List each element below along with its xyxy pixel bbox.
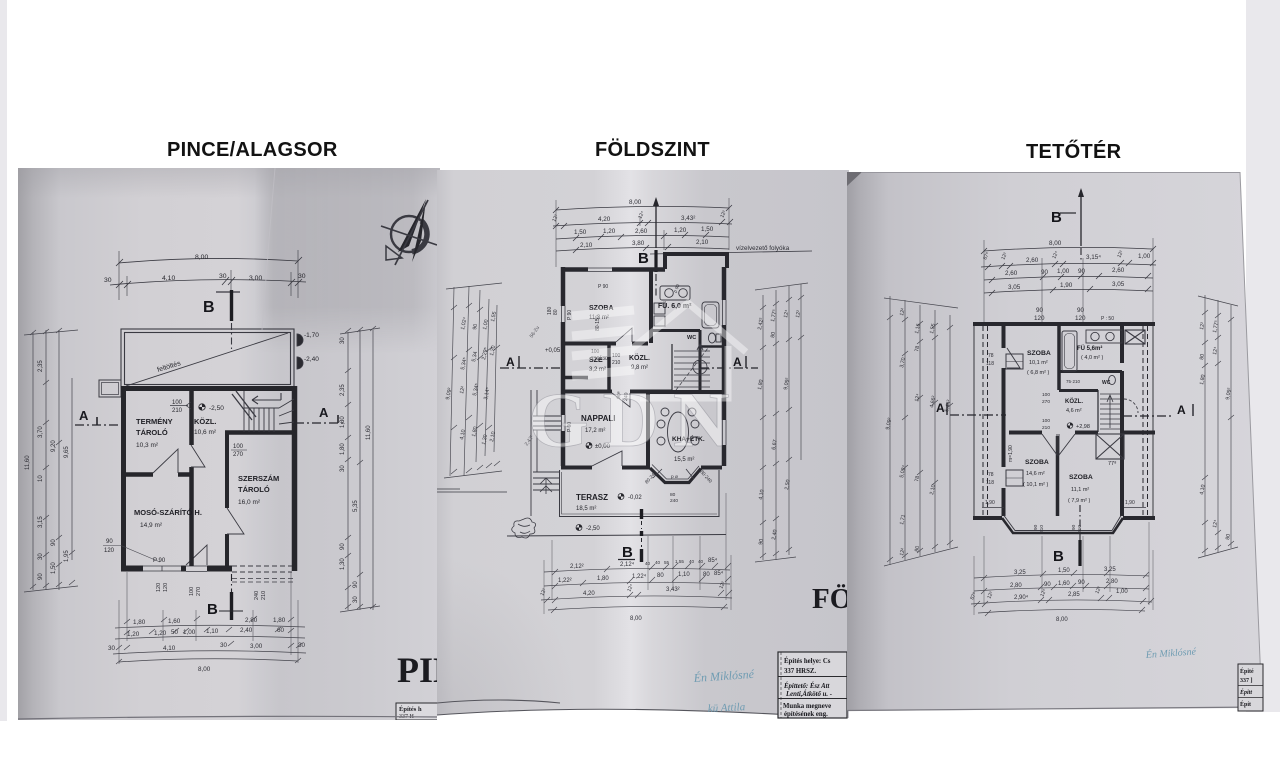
svg-text:11,60: 11,60 [366, 425, 372, 440]
svg-text:80: 80 [703, 572, 710, 578]
svg-text:1,90: 1,90 [985, 500, 995, 506]
svg-text:210: 210 [612, 360, 621, 366]
svg-text:40: 40 [698, 559, 704, 564]
svg-text:60: 60 [277, 627, 285, 634]
svg-text:B: B [207, 601, 218, 618]
svg-text:2,35: 2,35 [38, 360, 44, 372]
svg-text:1,30: 1,30 [340, 558, 346, 570]
svg-text:80: 80 [770, 331, 777, 338]
svg-text:3,80: 3,80 [632, 240, 645, 247]
svg-text:KÖZL.: KÖZL. [1065, 398, 1083, 405]
svg-text:A: A [79, 408, 89, 423]
svg-text:2,90⁴: 2,90⁴ [1014, 594, 1029, 601]
svg-text:WC: WC [1102, 380, 1111, 386]
svg-text:80: 80 [1199, 353, 1206, 360]
svg-text:Építtető: Ész Att: Építtető: Ész Att [783, 682, 831, 690]
svg-text:10,1 m²: 10,1 m² [1029, 360, 1048, 366]
svg-text:270: 270 [196, 587, 202, 596]
svg-text:SZERSZÁM: SZERSZÁM [238, 474, 279, 483]
svg-text:2,80: 2,80 [1106, 579, 1118, 585]
svg-text:9,20: 9,20 [51, 440, 57, 452]
svg-text:1,90: 1,90 [1125, 500, 1135, 506]
svg-text:80: 80 [1225, 533, 1232, 540]
svg-text:118: 118 [986, 361, 994, 367]
svg-text:1,80: 1,80 [133, 619, 146, 626]
svg-text:Lenti,Átkötő u. -: Lenti,Átkötő u. - [785, 690, 833, 698]
svg-text:80: 80 [657, 573, 664, 579]
svg-text:11,1 m²: 11,1 m² [1071, 487, 1089, 493]
svg-text:30: 30 [353, 596, 359, 603]
svg-text:240: 240 [254, 591, 260, 600]
svg-text:30: 30 [340, 337, 346, 344]
svg-text:4,20: 4,20 [583, 591, 595, 597]
svg-text:2,60: 2,60 [1112, 267, 1125, 274]
svg-text:2,85: 2,85 [1068, 592, 1080, 598]
svg-text:SZOBA: SZOBA [1025, 459, 1049, 466]
svg-text:30: 30 [38, 553, 44, 560]
svg-text:1,55: 1,55 [675, 559, 684, 564]
svg-text:2,60: 2,60 [635, 228, 648, 235]
svg-text:1,80: 1,80 [597, 576, 609, 582]
svg-text:P 90: P 90 [153, 558, 166, 564]
svg-text:kü Attila: kü Attila [708, 701, 746, 715]
svg-text:m=1,90: m=1,90 [1008, 445, 1014, 462]
svg-text:90: 90 [1033, 524, 1039, 530]
svg-text:B: B [622, 544, 633, 561]
svg-text:3,00: 3,00 [250, 643, 263, 650]
svg-text:TERMÉNY: TERMÉNY [136, 417, 173, 426]
svg-text:210: 210 [261, 591, 267, 600]
svg-text:10,6 m²: 10,6 m² [194, 429, 217, 436]
svg-text:1,20: 1,20 [603, 228, 616, 235]
svg-text:90: 90 [353, 581, 359, 588]
svg-text:Épitt: Épitt [1239, 688, 1252, 696]
svg-text:építésének eng.: építésének eng. [784, 711, 828, 718]
svg-text:GDN: GDN [528, 376, 743, 463]
svg-text:A: A [1177, 403, 1186, 417]
svg-text:3,15: 3,15 [38, 516, 44, 528]
svg-text:1,60: 1,60 [168, 618, 181, 625]
svg-text:30: 30 [220, 642, 228, 649]
svg-text:A: A [733, 355, 742, 369]
svg-text:1,00: 1,00 [1116, 589, 1128, 595]
svg-text:50: 50 [171, 629, 179, 636]
svg-text:10,3 m²: 10,3 m² [136, 442, 159, 449]
svg-text:( 7,9 m² ): ( 7,9 m² ) [1068, 498, 1090, 504]
svg-text:KÖZL.: KÖZL. [194, 417, 217, 426]
svg-text:3,05: 3,05 [1008, 284, 1021, 291]
svg-text:90: 90 [1071, 524, 1077, 530]
svg-text:30: 30 [104, 277, 112, 284]
svg-text:1,80: 1,80 [340, 443, 346, 455]
svg-text:90: 90 [38, 573, 44, 580]
svg-text:MOSÓ-SZÁRÍTÓ H.: MOSÓ-SZÁRÍTÓ H. [134, 508, 202, 517]
svg-text:78: 78 [988, 353, 994, 359]
svg-text:B: B [1053, 548, 1064, 565]
svg-text:8,00: 8,00 [195, 254, 208, 261]
svg-text:-1,70: -1,70 [304, 332, 319, 339]
svg-text:55: 55 [664, 560, 670, 565]
svg-text:10: 10 [38, 475, 44, 482]
svg-text:1,00: 1,00 [183, 629, 196, 636]
svg-text:1,80: 1,80 [273, 617, 286, 624]
svg-text:1,00: 1,00 [1057, 268, 1070, 275]
svg-text:2,12⁴: 2,12⁴ [620, 561, 635, 568]
svg-text:40: 40 [645, 561, 651, 566]
svg-text:120: 120 [156, 583, 162, 592]
svg-text:8,00: 8,00 [629, 199, 642, 206]
svg-text:2,35: 2,35 [340, 384, 346, 396]
svg-text:90: 90 [1077, 307, 1085, 314]
svg-text:2,10: 2,10 [580, 242, 593, 249]
svg-text:1,22⁴: 1,22⁴ [632, 573, 647, 580]
svg-text:90: 90 [1044, 582, 1051, 588]
svg-text:1,10: 1,10 [678, 572, 690, 578]
svg-text:80: 80 [670, 492, 676, 498]
svg-text:-0,02: -0,02 [628, 495, 642, 501]
svg-text:90: 90 [340, 543, 346, 550]
svg-text:120: 120 [104, 548, 115, 554]
svg-text:TÁROLÓ: TÁROLÓ [238, 485, 270, 494]
svg-text:2,10: 2,10 [696, 239, 709, 246]
svg-text:Munka megneve: Munka megneve [783, 703, 831, 710]
svg-text:100: 100 [189, 587, 195, 596]
svg-text:A: A [936, 401, 945, 415]
svg-text:4,6 m²: 4,6 m² [1066, 408, 1082, 414]
svg-text:337 HRSZ.: 337 HRSZ. [784, 668, 816, 675]
svg-text:90: 90 [51, 539, 57, 546]
svg-text:1,00: 1,00 [1138, 253, 1151, 260]
svg-text:210: 210 [1039, 525, 1045, 533]
svg-text:120: 120 [163, 583, 169, 592]
svg-text:( 10,1 m² ): ( 10,1 m² ) [1023, 482, 1049, 488]
svg-text:1,90: 1,90 [1060, 282, 1073, 289]
svg-text:-2,40: -2,40 [304, 356, 319, 363]
svg-text:85⁴: 85⁴ [708, 557, 718, 564]
svg-text:FÖ: FÖ [812, 583, 849, 615]
svg-text:100: 100 [172, 400, 183, 406]
svg-text:1,20: 1,20 [154, 630, 167, 637]
svg-text:210: 210 [172, 408, 183, 414]
svg-text:90: 90 [1078, 580, 1085, 586]
svg-text:16,0 m²: 16,0 m² [238, 499, 261, 506]
svg-text:A: A [319, 405, 329, 420]
svg-text:337 ]: 337 ] [1240, 678, 1253, 684]
svg-text:78: 78 [988, 472, 994, 478]
svg-text:1,22²: 1,22² [558, 578, 572, 584]
svg-text:B: B [203, 299, 215, 316]
svg-text:1,60: 1,60 [1058, 581, 1070, 587]
svg-text:3,00: 3,00 [249, 275, 262, 282]
svg-text:240: 240 [670, 498, 678, 504]
svg-text:270: 270 [1042, 399, 1050, 405]
svg-text:100: 100 [1042, 418, 1050, 424]
svg-text:8,00: 8,00 [630, 616, 642, 622]
svg-text:PIN: PIN [397, 650, 440, 690]
svg-text:90: 90 [758, 538, 765, 545]
svg-text:3,70: 3,70 [38, 426, 44, 438]
svg-text:1,50: 1,50 [1058, 568, 1070, 574]
svg-text:14,6 m²: 14,6 m² [1026, 471, 1045, 477]
svg-text:A: A [506, 355, 515, 369]
svg-text:90: 90 [106, 539, 113, 545]
svg-text:2,80: 2,80 [245, 617, 258, 624]
svg-text:120: 120 [1075, 315, 1086, 322]
svg-text:90: 90 [1041, 269, 1049, 276]
svg-text:8,00: 8,00 [198, 666, 211, 673]
svg-text:3,25: 3,25 [1014, 570, 1026, 576]
svg-text:SZOBA: SZOBA [1027, 350, 1051, 357]
svg-text:Épité: Épité [1240, 667, 1254, 675]
svg-text:77⁸: 77⁸ [1108, 460, 1116, 467]
svg-text:40: 40 [655, 560, 661, 565]
svg-text:3,15⁴: 3,15⁴ [1086, 254, 1101, 261]
svg-text:11,60: 11,60 [25, 455, 31, 470]
svg-text:vízelvezető folyóka: vízelvezető folyóka [736, 245, 790, 252]
svg-text:( 4,0 m² ): ( 4,0 m² ) [1081, 355, 1103, 361]
svg-text:40: 40 [689, 559, 695, 564]
svg-text:TÁROLÓ: TÁROLÓ [136, 428, 168, 437]
svg-text:14,9 m²: 14,9 m² [140, 522, 163, 529]
svg-text:-2,50: -2,50 [586, 526, 600, 532]
svg-text:1,95: 1,95 [64, 550, 70, 562]
svg-text:8,00: 8,00 [1056, 617, 1068, 623]
svg-text:+0,05: +0,05 [545, 348, 561, 354]
svg-text:( 6,8 m² ): ( 6,8 m² ) [1027, 370, 1049, 376]
svg-text:2,60: 2,60 [1005, 270, 1018, 277]
svg-text:210: 210 [1042, 425, 1050, 431]
svg-text:118: 118 [986, 480, 994, 486]
svg-text:3,25: 3,25 [1104, 567, 1116, 573]
svg-text:2,12²: 2,12² [570, 564, 584, 570]
svg-text:SZOBA: SZOBA [1069, 474, 1093, 481]
svg-text:1,30: 1,30 [340, 416, 346, 428]
svg-text:1,20: 1,20 [127, 631, 140, 638]
svg-text:3,43²: 3,43² [681, 215, 695, 222]
svg-text:90: 90 [1078, 268, 1086, 275]
svg-text:P : 50: P : 50 [1101, 316, 1114, 322]
svg-text:1,20: 1,20 [674, 227, 687, 234]
svg-text:30: 30 [340, 465, 346, 472]
svg-text:Épít: Épít [1240, 700, 1251, 708]
svg-text:1,10: 1,10 [206, 628, 219, 635]
svg-text:100: 100 [1042, 392, 1050, 398]
svg-text:100: 100 [233, 444, 244, 450]
svg-text:270: 270 [233, 452, 244, 458]
svg-text:WC: WC [687, 335, 696, 341]
svg-text:2,40: 2,40 [240, 627, 253, 634]
svg-text:4,20: 4,20 [598, 216, 611, 223]
svg-text:Építés helye: Cs: Építés helye: Cs [784, 657, 831, 665]
svg-text:B: B [1051, 209, 1062, 226]
svg-text:2,60: 2,60 [1026, 257, 1039, 264]
svg-text:30: 30 [108, 645, 116, 652]
svg-text:30: 30 [298, 642, 306, 649]
svg-text:5,35: 5,35 [353, 500, 359, 512]
svg-text:TERASZ: TERASZ [576, 493, 608, 502]
svg-text:p ø: p ø [671, 475, 678, 480]
svg-text:+2,98: +2,98 [1076, 424, 1090, 430]
svg-text:1,50: 1,50 [574, 229, 587, 236]
svg-text:18,5 m²: 18,5 m² [576, 506, 596, 512]
svg-text:-2,50: -2,50 [209, 405, 224, 412]
svg-text:8,00: 8,00 [1049, 240, 1062, 247]
svg-text:30: 30 [219, 273, 227, 280]
svg-text:75·210: 75·210 [1066, 379, 1081, 384]
svg-text:P 90: P 90 [598, 284, 608, 290]
svg-text:4,10: 4,10 [163, 645, 176, 652]
svg-text:9,65: 9,65 [64, 446, 70, 458]
svg-text:3,43²: 3,43² [666, 587, 680, 593]
svg-text:FÜ 5,6m²: FÜ 5,6m² [1077, 345, 1102, 352]
svg-text:90: 90 [1036, 307, 1044, 314]
svg-text:Építés h: Építés h [399, 705, 422, 713]
svg-text:85⁴: 85⁴ [714, 570, 724, 577]
svg-text:1,50: 1,50 [701, 226, 714, 233]
svg-text:1,50: 1,50 [51, 562, 57, 574]
svg-text:B: B [638, 250, 649, 267]
svg-text:120: 120 [1034, 315, 1045, 322]
svg-text:2,80: 2,80 [1010, 583, 1022, 589]
svg-text:80: 80 [553, 309, 559, 315]
svg-text:3,05: 3,05 [1112, 281, 1125, 288]
